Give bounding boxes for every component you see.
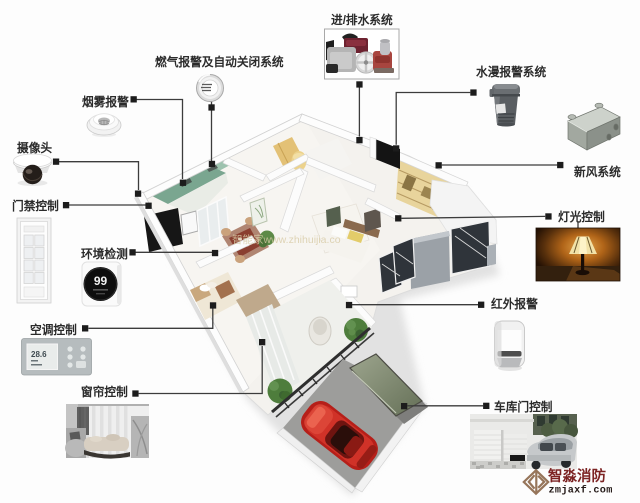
svg-text:烟雾报警: 烟雾报警 [82, 95, 129, 109]
svg-text:车库门控制: 车库门控制 [494, 400, 553, 414]
svg-text:空调控制: 空调控制 [30, 323, 77, 337]
svg-text:智淼消防: 智淼消防 [548, 467, 606, 485]
svg-text:环境检测: 环境检测 [81, 247, 128, 261]
svg-text:智能家www.zhihuijia.co: 智能家www.zhihuijia.co [232, 233, 341, 246]
svg-text:28.6: 28.6 [31, 350, 47, 359]
svg-text:门禁控制: 门禁控制 [12, 199, 59, 213]
svg-text:进/排水系统: 进/排水系统 [331, 13, 393, 27]
svg-text:99: 99 [94, 274, 108, 288]
svg-text:水漫报警系统: 水漫报警系统 [476, 65, 546, 79]
svg-text:燃气报警及自动关闭系统: 燃气报警及自动关闭系统 [154, 55, 284, 69]
svg-text:灯光控制: 灯光控制 [558, 210, 605, 224]
svg-text:新风系统: 新风系统 [574, 165, 621, 179]
svg-text:红外报警: 红外报警 [491, 297, 538, 311]
svg-text:窗帘控制: 窗帘控制 [81, 385, 128, 399]
svg-text:摄像头: 摄像头 [17, 141, 52, 155]
svg-text:zmjaxf.com: zmjaxf.com [549, 485, 613, 497]
